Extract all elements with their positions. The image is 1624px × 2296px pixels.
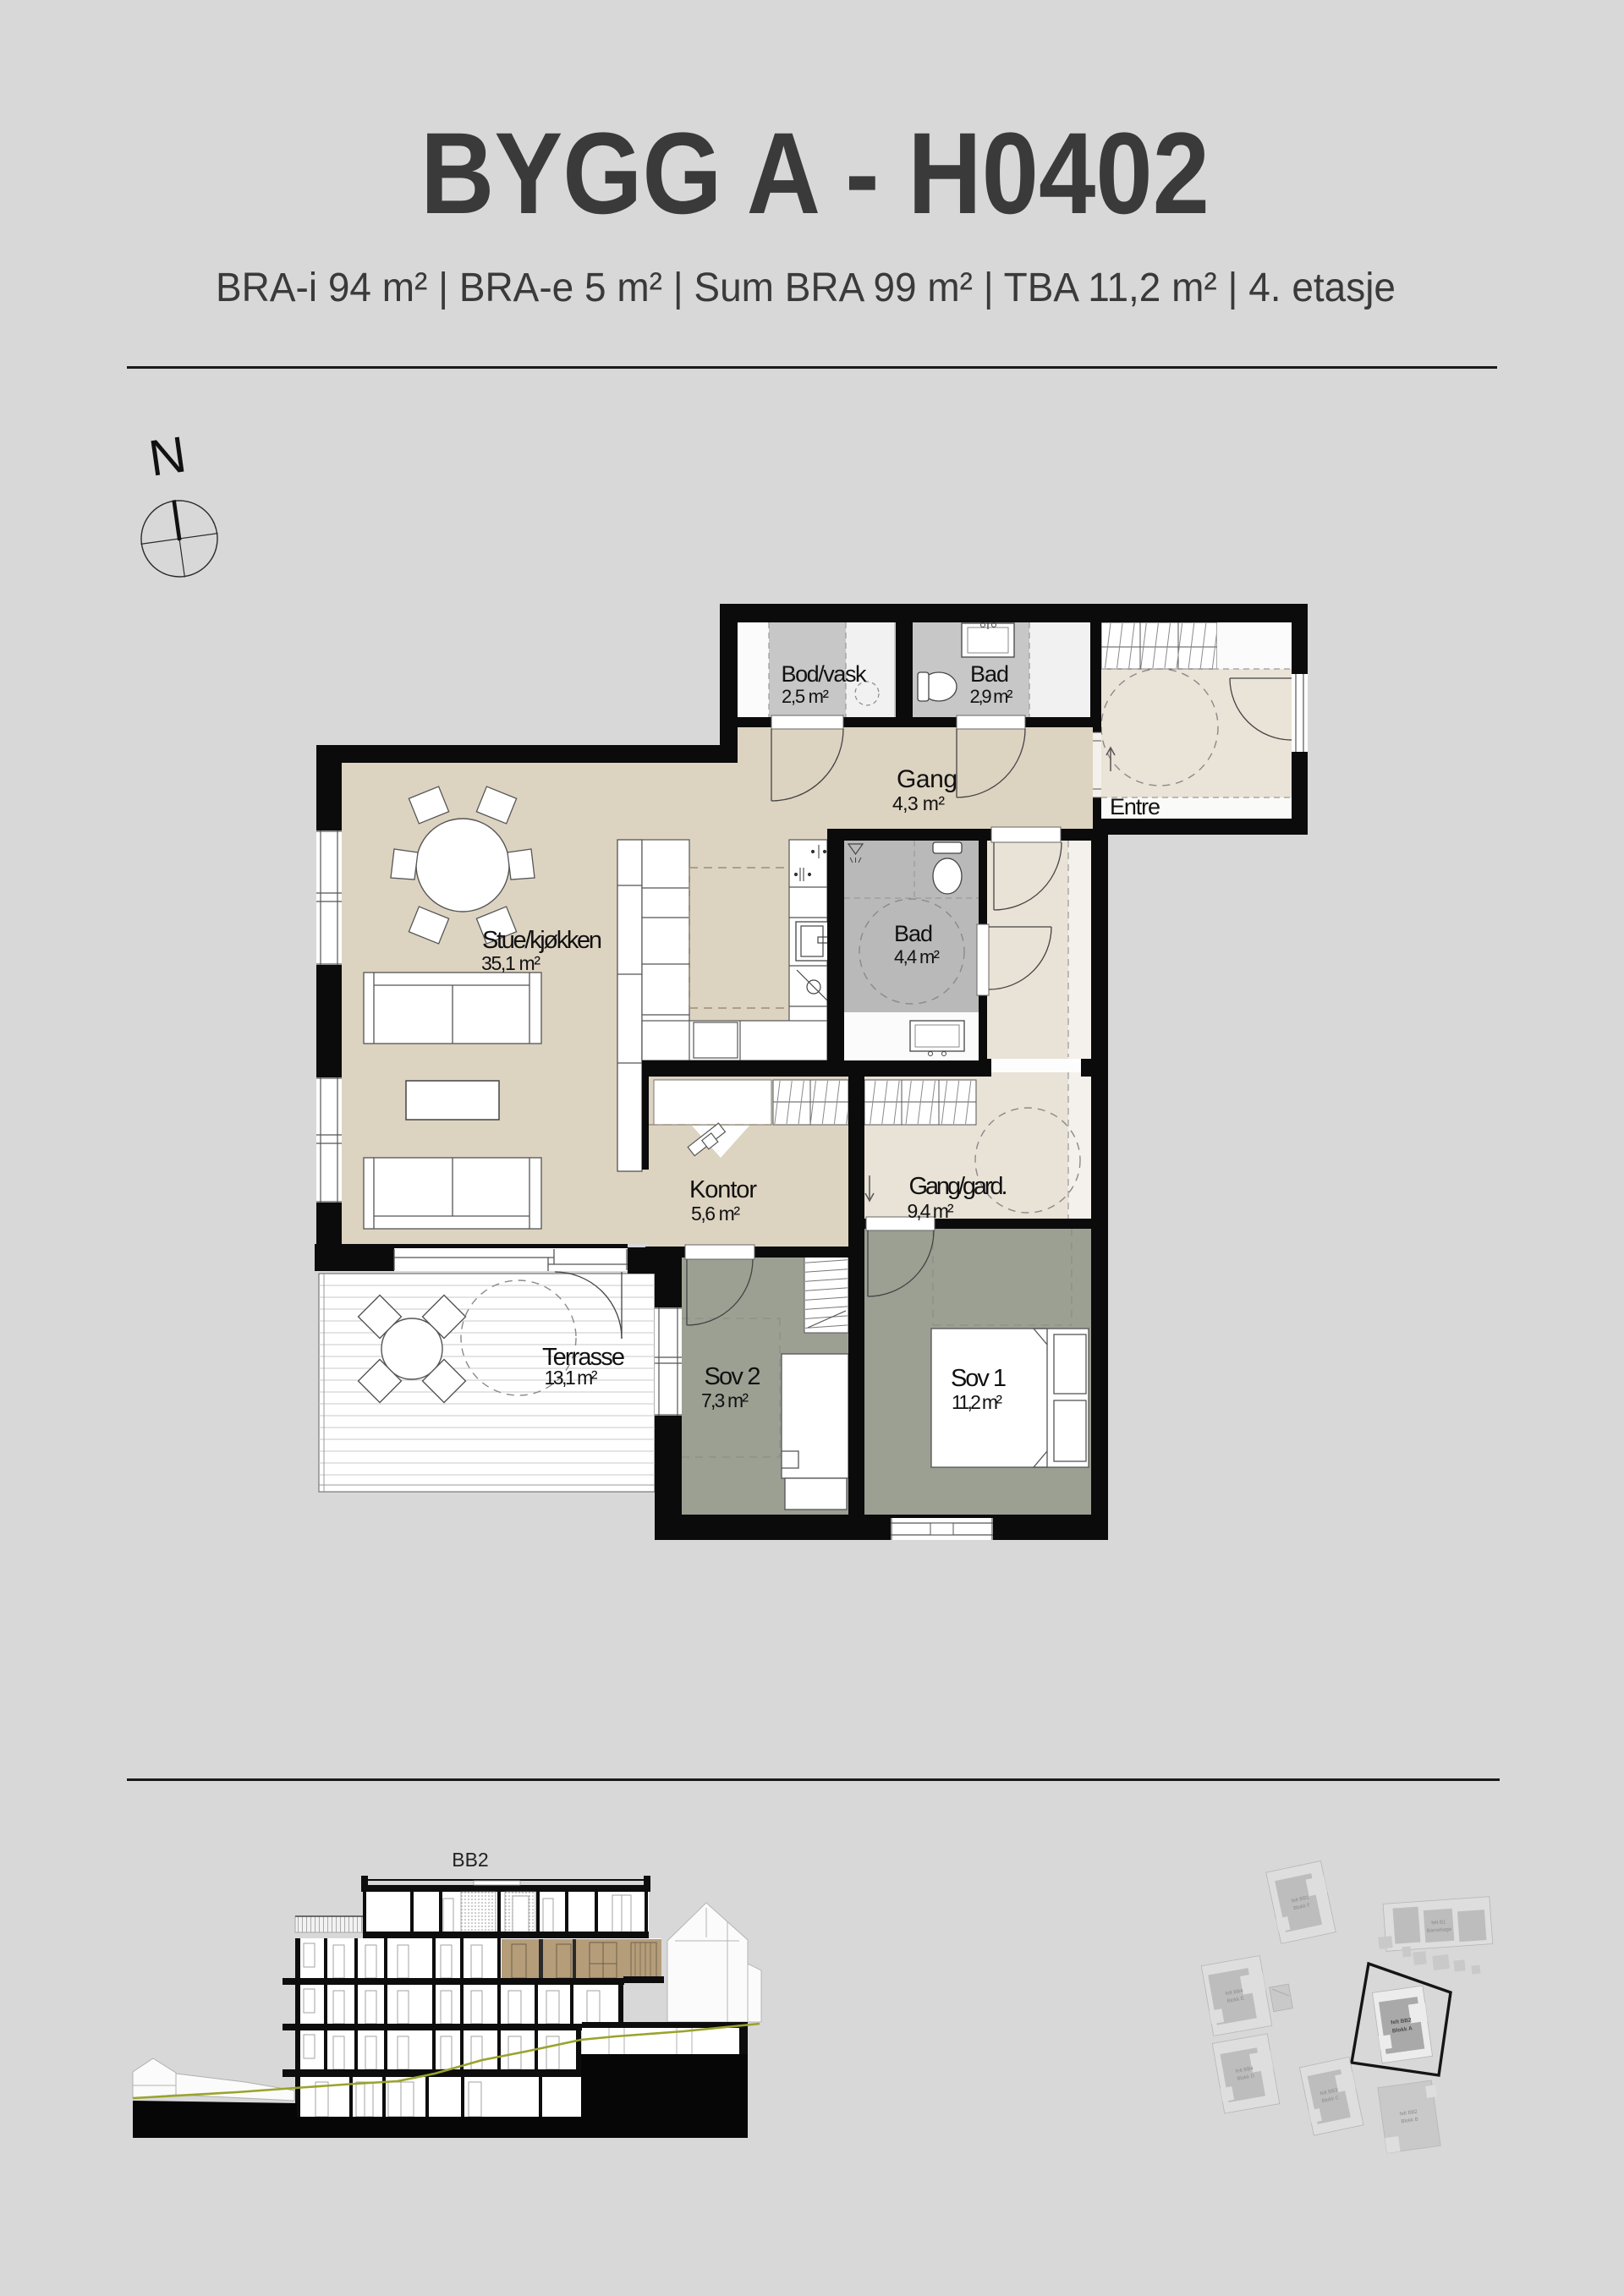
svg-text:9,4 m²: 9,4 m² [908,1200,954,1222]
svg-text:BYGG A - H0402: BYGG A - H0402 [420,109,1210,238]
svg-text:5,6 m²: 5,6 m² [691,1203,740,1225]
svg-text:11,2 m²: 11,2 m² [952,1391,1002,1413]
svg-text:Entre: Entre [1110,794,1160,819]
svg-text:Gang: Gang [897,765,957,793]
svg-text:BB2: BB2 [452,1849,488,1871]
svg-text:4,3 m²: 4,3 m² [892,792,945,814]
svg-text:BRA-i 94 m² | BRA-e 5 m² | Su: BRA-i 94 m² | BRA-e 5 m² | Sum BRA 99 m²… [216,266,1396,310]
svg-text:Stue/kjøkken: Stue/kjøkken [482,927,602,954]
svg-text:Bad: Bad [894,921,933,946]
svg-text:2,5 m²: 2,5 m² [782,686,829,707]
svg-text:Bod/vask: Bod/vask [782,661,868,687]
svg-text:4,4 m²: 4,4 m² [894,946,940,967]
svg-text:felt B1: felt B1 [1431,1920,1446,1926]
svg-text:Sov 1: Sov 1 [951,1365,1007,1392]
svg-text:2,9 m²: 2,9 m² [970,686,1013,707]
svg-text:Sov 2: Sov 2 [705,1363,761,1390]
svg-text:N: N [145,425,189,486]
svg-text:Gang/gard.: Gang/gard. [909,1173,1008,1200]
svg-text:Bad: Bad [970,661,1009,687]
svg-text:13,1 m²: 13,1 m² [545,1367,598,1389]
svg-text:Kontor: Kontor [689,1176,757,1203]
svg-text:35,1 m²: 35,1 m² [481,952,540,974]
svg-text:7,3 m²: 7,3 m² [701,1389,749,1411]
